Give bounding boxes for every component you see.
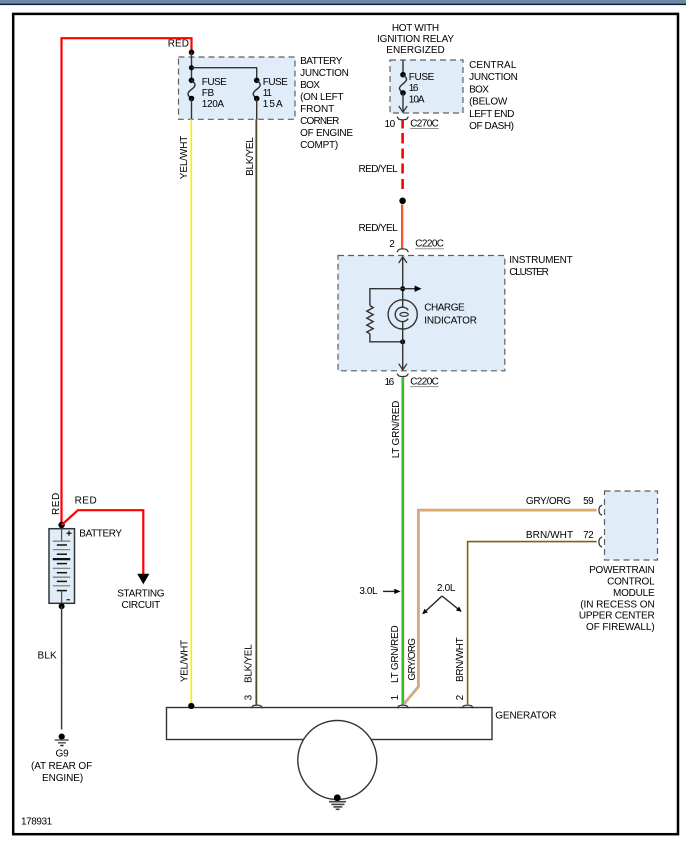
svg-text:11: 11 [263, 88, 273, 99]
svg-text:OF ENGINE: OF ENGINE [300, 128, 353, 139]
svg-text:(ON LEFT: (ON LEFT [300, 92, 343, 103]
svg-text:59: 59 [583, 496, 594, 507]
svg-text:CHARGE: CHARGE [424, 303, 465, 314]
svg-text:CORNER: CORNER [300, 116, 339, 127]
svg-text:3: 3 [244, 694, 255, 700]
svg-text:72: 72 [583, 530, 594, 541]
svg-text:RED: RED [75, 495, 97, 506]
svg-text:LEFT END: LEFT END [469, 109, 514, 120]
svg-text:OF DASH): OF DASH) [469, 121, 514, 132]
svg-text:2: 2 [389, 239, 395, 250]
svg-text:JUNCTION: JUNCTION [300, 68, 349, 79]
svg-text:GRY/ORG: GRY/ORG [407, 638, 418, 681]
svg-text:GRY/ORG: GRY/ORG [526, 496, 571, 507]
svg-text:G9: G9 [56, 749, 70, 760]
svg-text:LT GRN/RED: LT GRN/RED [391, 401, 402, 459]
svg-text:BATTERY: BATTERY [79, 529, 122, 540]
svg-text:GENERATOR: GENERATOR [495, 711, 556, 722]
svg-text:178931: 178931 [21, 817, 53, 828]
svg-text:OF FIREWALL): OF FIREWALL) [586, 622, 655, 633]
svg-text:BLK/YEL: BLK/YEL [245, 137, 256, 176]
svg-text:HOT WITH: HOT WITH [392, 23, 439, 34]
svg-text:BLK/YEL: BLK/YEL [244, 644, 255, 683]
svg-text:FRONT: FRONT [300, 104, 334, 115]
svg-text:UPPER CENTER: UPPER CENTER [579, 611, 655, 622]
svg-text:INSTRUMENT: INSTRUMENT [509, 255, 572, 266]
svg-text:120A: 120A [202, 99, 225, 110]
svg-text:FUSE: FUSE [409, 72, 435, 83]
svg-text:LT GRN/RED: LT GRN/RED [390, 626, 401, 684]
svg-text:BOX: BOX [300, 80, 320, 91]
svg-text:C220C: C220C [415, 239, 444, 250]
svg-text:2: 2 [455, 694, 466, 700]
svg-text:(BELOW: (BELOW [469, 97, 508, 108]
svg-text:YEL/WHT: YEL/WHT [180, 640, 191, 682]
svg-text:FUSE: FUSE [202, 77, 227, 88]
svg-text:(AT REAR OF: (AT REAR OF [31, 761, 92, 772]
svg-text:POWERTRAIN: POWERTRAIN [589, 565, 654, 576]
svg-text:10A: 10A [409, 94, 425, 105]
svg-text:C270C: C270C [410, 119, 439, 130]
svg-text:CENTRAL: CENTRAL [469, 60, 517, 71]
svg-text:15A: 15A [263, 99, 283, 110]
svg-text:ENGINE): ENGINE) [42, 773, 83, 784]
svg-text:FB: FB [202, 88, 215, 99]
svg-text:CIRCUIT: CIRCUIT [122, 600, 161, 611]
svg-text:BRN/WHT: BRN/WHT [526, 530, 573, 541]
svg-text:16: 16 [385, 377, 395, 388]
svg-text:10: 10 [385, 119, 396, 130]
svg-text:CLUSTER: CLUSTER [509, 267, 549, 278]
svg-text:(IN RECESS ON: (IN RECESS ON [580, 599, 654, 610]
svg-text:RED/YEL: RED/YEL [359, 223, 399, 234]
svg-text:BATTERY: BATTERY [300, 56, 343, 67]
svg-text:BRN/WHT: BRN/WHT [455, 637, 466, 682]
svg-text:16: 16 [409, 83, 419, 94]
svg-text:C220C: C220C [410, 377, 439, 388]
svg-text:YEL/WHT: YEL/WHT [179, 136, 190, 179]
svg-text:FUSE: FUSE [263, 77, 288, 88]
svg-text:RED/YEL: RED/YEL [359, 164, 399, 175]
svg-text:MODULE: MODULE [613, 588, 655, 599]
svg-text:BOX: BOX [469, 84, 489, 95]
svg-text:CONTROL: CONTROL [607, 577, 655, 588]
svg-text:STARTING: STARTING [117, 589, 165, 600]
svg-text:COMPT): COMPT) [300, 140, 338, 151]
svg-text:INDICATOR: INDICATOR [424, 315, 477, 326]
svg-text:IGNITION RELAY: IGNITION RELAY [377, 34, 454, 45]
svg-text:2.0L: 2.0L [437, 583, 456, 594]
svg-text:JUNCTION: JUNCTION [469, 72, 518, 83]
svg-text:1: 1 [390, 694, 401, 700]
svg-text:3.0L: 3.0L [359, 586, 378, 597]
svg-text:ENERGIZED: ENERGIZED [386, 45, 444, 56]
svg-text:BLK: BLK [38, 651, 58, 662]
svg-text:RED: RED [51, 493, 62, 515]
svg-text:RED: RED [168, 39, 189, 50]
